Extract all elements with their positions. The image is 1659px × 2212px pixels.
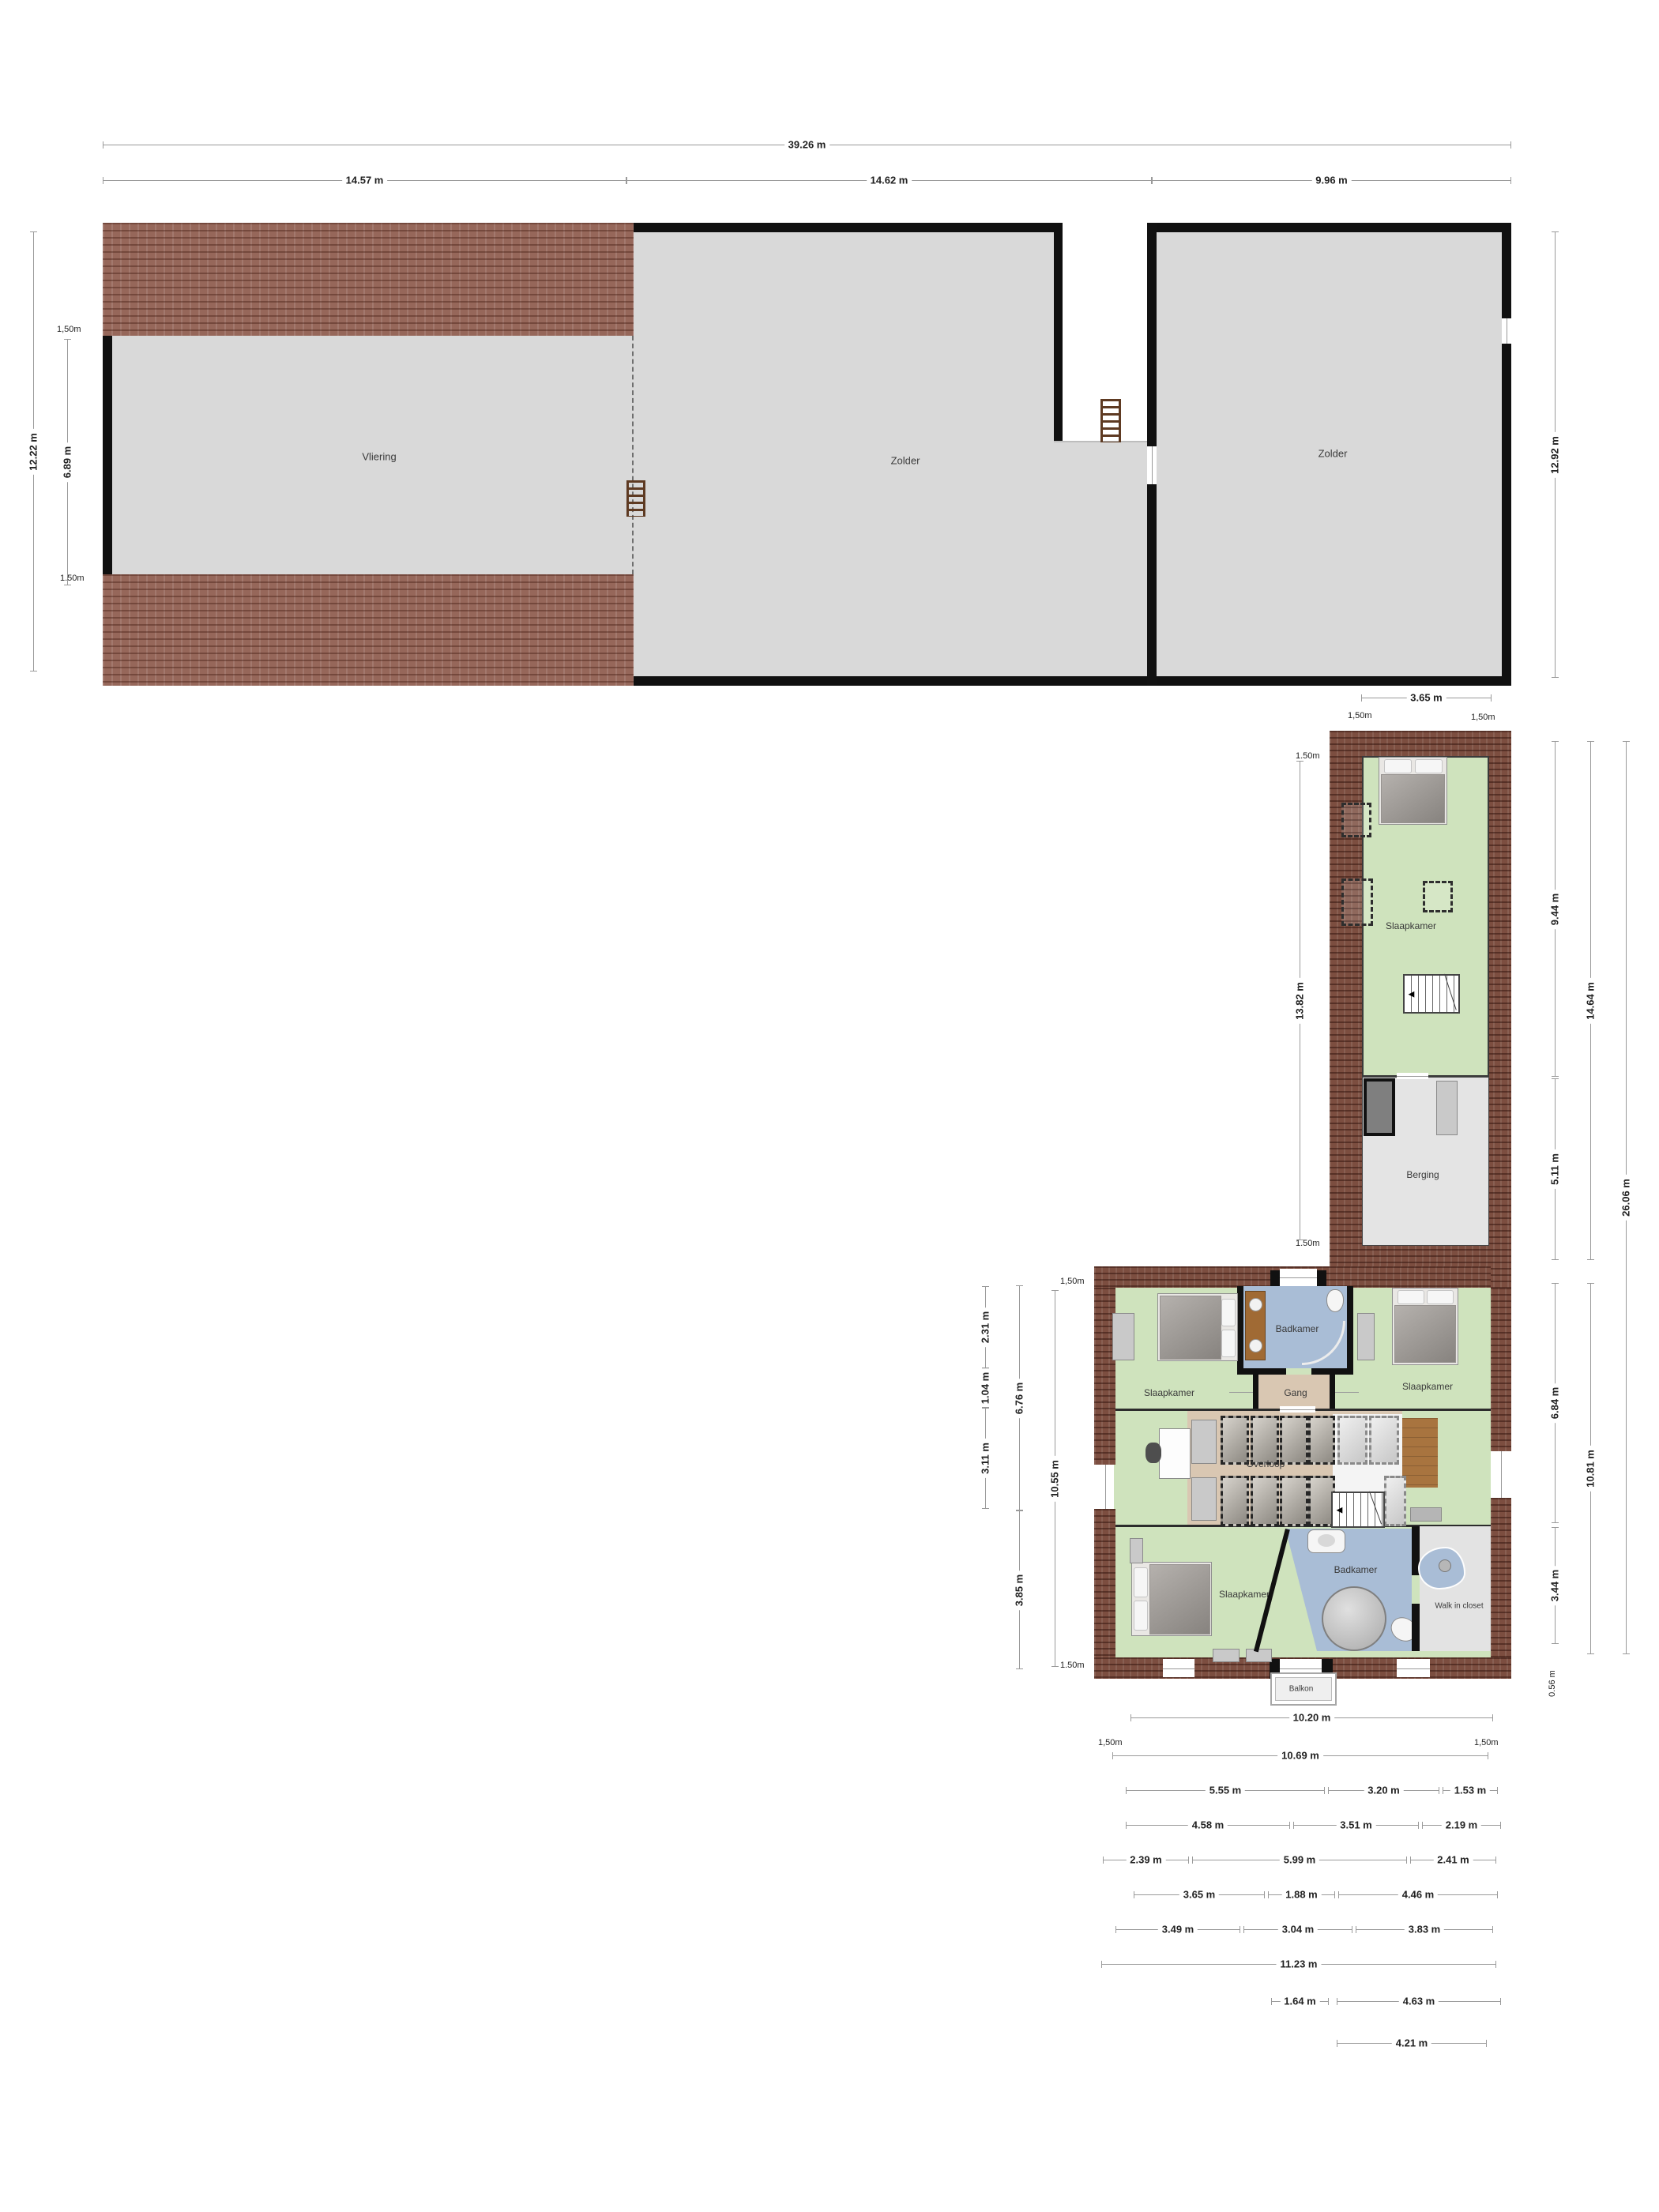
room-label-zolder-right: Zolder (1319, 448, 1348, 460)
knee-height-label: 1.50m (60, 574, 85, 583)
ceiling-panel (1251, 1416, 1279, 1465)
dim-label: 2.31 m (980, 1307, 991, 1347)
dim-line: 5.99 m (1192, 1860, 1407, 1860)
dim-line: 14.64 m (1590, 741, 1591, 1260)
pillow (1427, 1290, 1454, 1304)
interior-window (1280, 1406, 1315, 1413)
dim-line: 3.11 m (985, 1408, 986, 1509)
shower-head-icon (1439, 1559, 1451, 1572)
dim-line: 2.39 m (1103, 1860, 1189, 1860)
stairs-direction-arrow: ◄ (1334, 1505, 1345, 1515)
dim-label: 14.64 m (1585, 978, 1597, 1024)
dim-label: 4.58 m (1188, 1819, 1228, 1831)
wall-segment (1330, 1375, 1335, 1410)
pillow (1384, 759, 1412, 773)
closet (1364, 1078, 1395, 1136)
dim-line: 10.69 m (1112, 1755, 1488, 1756)
pillow (1134, 1601, 1148, 1631)
wall-segment (1311, 1368, 1353, 1375)
ceiling-panel (1337, 1416, 1367, 1465)
ceiling-panel (1308, 1416, 1335, 1465)
dim-line: 12.92 m (1555, 231, 1556, 678)
dim-line: 2.41 m (1410, 1860, 1496, 1860)
dim-line: 4.58 m (1126, 1825, 1290, 1826)
dim-line: 2.19 m (1422, 1825, 1501, 1826)
dim-label: 11.23 m (1277, 1958, 1322, 1970)
dim-line: 12.22 m (33, 231, 34, 671)
dim-line: 3.20 m (1328, 1790, 1439, 1791)
dim-line: 5.11 m (1555, 1078, 1556, 1260)
house-wall-right-lower (1491, 1498, 1511, 1679)
sink-icon (1249, 1339, 1262, 1352)
dim-label: 26.06 m (1620, 1175, 1632, 1221)
ceiling-panel (1280, 1416, 1308, 1465)
loft-ladder-icon (626, 480, 645, 517)
dim-label: 6.89 m (62, 442, 73, 482)
knee-height-label: 1.50m (1296, 751, 1320, 761)
dim-label: 3.85 m (1014, 1570, 1025, 1609)
dim-line: 2.31 m (985, 1286, 986, 1368)
eave-label: 1,50m (1471, 713, 1495, 722)
desk (1159, 1428, 1191, 1479)
room-label-slaapkamer-bl: Slaapkamer (1219, 1589, 1270, 1600)
bed (1131, 1562, 1212, 1636)
room-label-balkon: Balkon (1289, 1685, 1314, 1694)
cabinet (1410, 1507, 1442, 1522)
dim-label: 2.39 m (1126, 1854, 1165, 1866)
ceiling-panel (1280, 1476, 1308, 1526)
ceiling-panel (1221, 1416, 1249, 1465)
dim-label: 2.19 m (1442, 1819, 1481, 1831)
mattress (1149, 1564, 1210, 1635)
room-label-slaapkamer-tr: Slaapkamer (1402, 1381, 1453, 1392)
room-label-gang: Gang (1284, 1387, 1307, 1398)
dim-line: 10.55 m (1055, 1290, 1055, 1667)
room-label-berging: Berging (1406, 1169, 1439, 1180)
knee-height-label: 1,50m (57, 325, 81, 334)
eave-label: 1,50m (1348, 711, 1372, 720)
dim-line: 6.89 m (67, 339, 68, 585)
sink-icon (1307, 1529, 1345, 1553)
closet (1112, 1313, 1134, 1360)
ceiling-panel (1369, 1416, 1399, 1465)
dim-label: 3.83 m (1405, 1924, 1444, 1935)
dim-label: 1.53 m (1450, 1785, 1490, 1796)
knee-height-label: 1.50m (1060, 1661, 1085, 1670)
dim-line: 4.46 m (1338, 1894, 1498, 1895)
room-label-badkamer-top: Badkamer (1276, 1323, 1319, 1334)
floorplan-canvas: Vliering Zolder Zolder 39.26 m 14.57 m 1… (0, 0, 1659, 2212)
dim-line: 9.44 m (1555, 741, 1556, 1077)
wall-segment (1270, 1270, 1280, 1286)
roof-window (1341, 803, 1371, 837)
dim-line: 9.96 m (1152, 180, 1511, 181)
dim-line: 1.64 m (1271, 2001, 1329, 2002)
dim-line: 5.55 m (1126, 1790, 1325, 1791)
dim-line: 1.53 m (1443, 1790, 1498, 1791)
window (1096, 1465, 1114, 1509)
dim-label: 10.20 m (1289, 1712, 1335, 1724)
cabinet (1436, 1081, 1458, 1135)
dim-line: 10.81 m (1590, 1283, 1591, 1654)
ceiling-panel (1384, 1476, 1406, 1526)
dim-label: 10.55 m (1049, 1456, 1061, 1502)
dim-line: 3.85 m (1019, 1510, 1020, 1669)
wing-berging-door (1397, 1073, 1428, 1079)
dim-line: 14.57 m (103, 180, 626, 181)
dim-label: 3.11 m (980, 1439, 991, 1478)
dim-label: 12.22 m (28, 429, 39, 475)
dim-line: 11.23 m (1101, 1964, 1496, 1965)
shower-blob (1418, 1547, 1465, 1589)
dim-line: 26.06 m (1626, 741, 1627, 1654)
dim-label: 12.92 m (1549, 432, 1561, 478)
room-label-walk-in-closet: Walk in closet (1435, 1602, 1483, 1611)
pillow (1221, 1299, 1236, 1326)
wall-segment (1253, 1375, 1258, 1410)
stairs-diagonal (1369, 1492, 1382, 1525)
dim-line: 4.21 m (1337, 2043, 1487, 2044)
closet (1357, 1313, 1375, 1360)
door-swing-line (1229, 1392, 1253, 1393)
dim-label: 10.81 m (1585, 1446, 1597, 1492)
dim-label: 2.41 m (1433, 1854, 1473, 1866)
dim-label: 5.55 m (1206, 1785, 1245, 1796)
dim-line: 6.76 m (1019, 1285, 1020, 1510)
room-label-wing-slaapkamer: Slaapkamer (1386, 920, 1436, 931)
roof-window (1341, 878, 1373, 926)
room-label-vliering: Vliering (362, 451, 396, 463)
dim-label: 3.20 m (1364, 1785, 1403, 1796)
window (1397, 1659, 1430, 1677)
mattress (1381, 774, 1445, 823)
dim-line: 10.20 m (1130, 1717, 1493, 1718)
dim-line: 3.44 m (1555, 1527, 1556, 1644)
bathtub-round (1322, 1586, 1386, 1651)
dim-label: 5.99 m (1280, 1854, 1319, 1866)
chair (1145, 1443, 1161, 1463)
cabinet (1191, 1477, 1217, 1521)
room-label-zolder-mid: Zolder (891, 455, 920, 467)
wall-segment (1237, 1286, 1243, 1375)
attic-roof-band-top (103, 223, 634, 336)
dim-line: 14.62 m (626, 180, 1152, 181)
dim-label: 9.44 m (1549, 889, 1561, 928)
closet (1130, 1538, 1143, 1563)
dim-line: 1.88 m (1268, 1894, 1335, 1895)
attic-divider-dashed (632, 336, 634, 574)
roof-window (1423, 881, 1453, 912)
dim-line: 1.04 m (985, 1368, 986, 1408)
dim-label: 3.49 m (1158, 1924, 1198, 1935)
dim-label: 4.46 m (1398, 1889, 1438, 1901)
room-label-badkamer-bottom: Badkamer (1334, 1564, 1378, 1575)
stairs-direction-arrow: ◄ (1406, 989, 1416, 999)
notch-ladder-icon (1100, 399, 1121, 442)
room-label-slaapkamer-tl: Slaapkamer (1144, 1387, 1194, 1398)
dim-label: 10.69 m (1277, 1750, 1323, 1762)
cabinet (1191, 1420, 1217, 1464)
dim-label: 4.21 m (1392, 2037, 1431, 2049)
pillow (1221, 1330, 1236, 1357)
dim-label: 4.63 m (1399, 1996, 1439, 2007)
window (1163, 1659, 1194, 1677)
bench (1246, 1649, 1272, 1662)
bed (1392, 1288, 1458, 1365)
dim-line: 4.63 m (1337, 2001, 1501, 2002)
attic-section-door (1147, 446, 1157, 484)
dim-label: 9.96 m (1311, 175, 1351, 186)
dim-label: 1.64 m (1280, 1996, 1319, 2007)
dim-label: 14.57 m (342, 175, 388, 186)
eave-label: 1,50m (1098, 1738, 1123, 1747)
dim-label: 3.65 m (1179, 1889, 1219, 1901)
stairs: ◄ (1331, 1492, 1385, 1528)
house-wall-right-upper (1491, 1288, 1511, 1451)
wall-segment (1237, 1368, 1286, 1375)
sink-basin (1318, 1534, 1335, 1547)
pillow (1134, 1567, 1148, 1597)
dim-label: 14.62 m (867, 175, 912, 186)
dim-line: 3.65 m (1361, 698, 1492, 698)
toilet-icon (1326, 1289, 1344, 1312)
dim-label: 3.65 m (1406, 692, 1446, 704)
mattress (1394, 1305, 1456, 1363)
eave-label: 1,50m (1474, 1738, 1499, 1747)
bed (1157, 1293, 1238, 1361)
dim-label: 6.84 m (1549, 1383, 1561, 1423)
walk-in-closet (1420, 1526, 1491, 1651)
dim-label: 5.11 m (1549, 1149, 1561, 1189)
attic-roof-band-bottom (103, 574, 634, 686)
knee-height-label: 1,50m (1060, 1277, 1085, 1286)
dim-line: 13.82 m (1300, 761, 1300, 1240)
dim-label: 3.04 m (1278, 1924, 1318, 1935)
knee-height-label: 1.50m (1296, 1239, 1320, 1248)
dim-label: 1.04 m (980, 1368, 991, 1408)
window (1280, 1269, 1317, 1286)
bed (1379, 757, 1447, 825)
vanity-counter (1245, 1291, 1266, 1360)
dim-line: 3.49 m (1115, 1929, 1240, 1930)
dim-label: 13.82 m (1294, 978, 1306, 1024)
wall-segment (1347, 1286, 1353, 1375)
stairs-diagonal (1444, 974, 1457, 1010)
dim-label: 3.44 m (1549, 1566, 1561, 1605)
dim-line: 39.26 m (103, 145, 1511, 145)
stairs: ◄ (1403, 974, 1460, 1014)
dim-line: 6.84 m (1555, 1283, 1556, 1523)
dim-label: 6.76 m (1014, 1378, 1025, 1417)
dim-line: 3.65 m (1134, 1894, 1265, 1895)
sink-icon (1249, 1298, 1262, 1311)
pillow (1415, 759, 1443, 773)
pillow (1398, 1290, 1424, 1304)
room-label-overloop: Overloop (1247, 1458, 1285, 1469)
overhang-label: 0.56 m (1548, 1670, 1557, 1697)
ceiling-panel (1221, 1476, 1249, 1526)
wall-segment (1317, 1270, 1326, 1286)
dim-line: 3.04 m (1243, 1929, 1352, 1930)
window (1492, 1451, 1510, 1498)
dim-label: 1.88 m (1281, 1889, 1321, 1901)
bench (1213, 1649, 1240, 1662)
attic-right-window (1502, 318, 1511, 344)
dim-line: 3.51 m (1293, 1825, 1419, 1826)
dim-label: 39.26 m (784, 139, 830, 151)
mattress (1160, 1296, 1221, 1360)
door-swing-line (1335, 1392, 1359, 1393)
dim-label: 3.51 m (1336, 1819, 1375, 1831)
dim-line: 3.83 m (1356, 1929, 1493, 1930)
wood-floor (1402, 1418, 1438, 1488)
ceiling-panel (1251, 1476, 1279, 1526)
house-wall-left-lower (1094, 1509, 1115, 1679)
wall-segment (1412, 1604, 1420, 1651)
